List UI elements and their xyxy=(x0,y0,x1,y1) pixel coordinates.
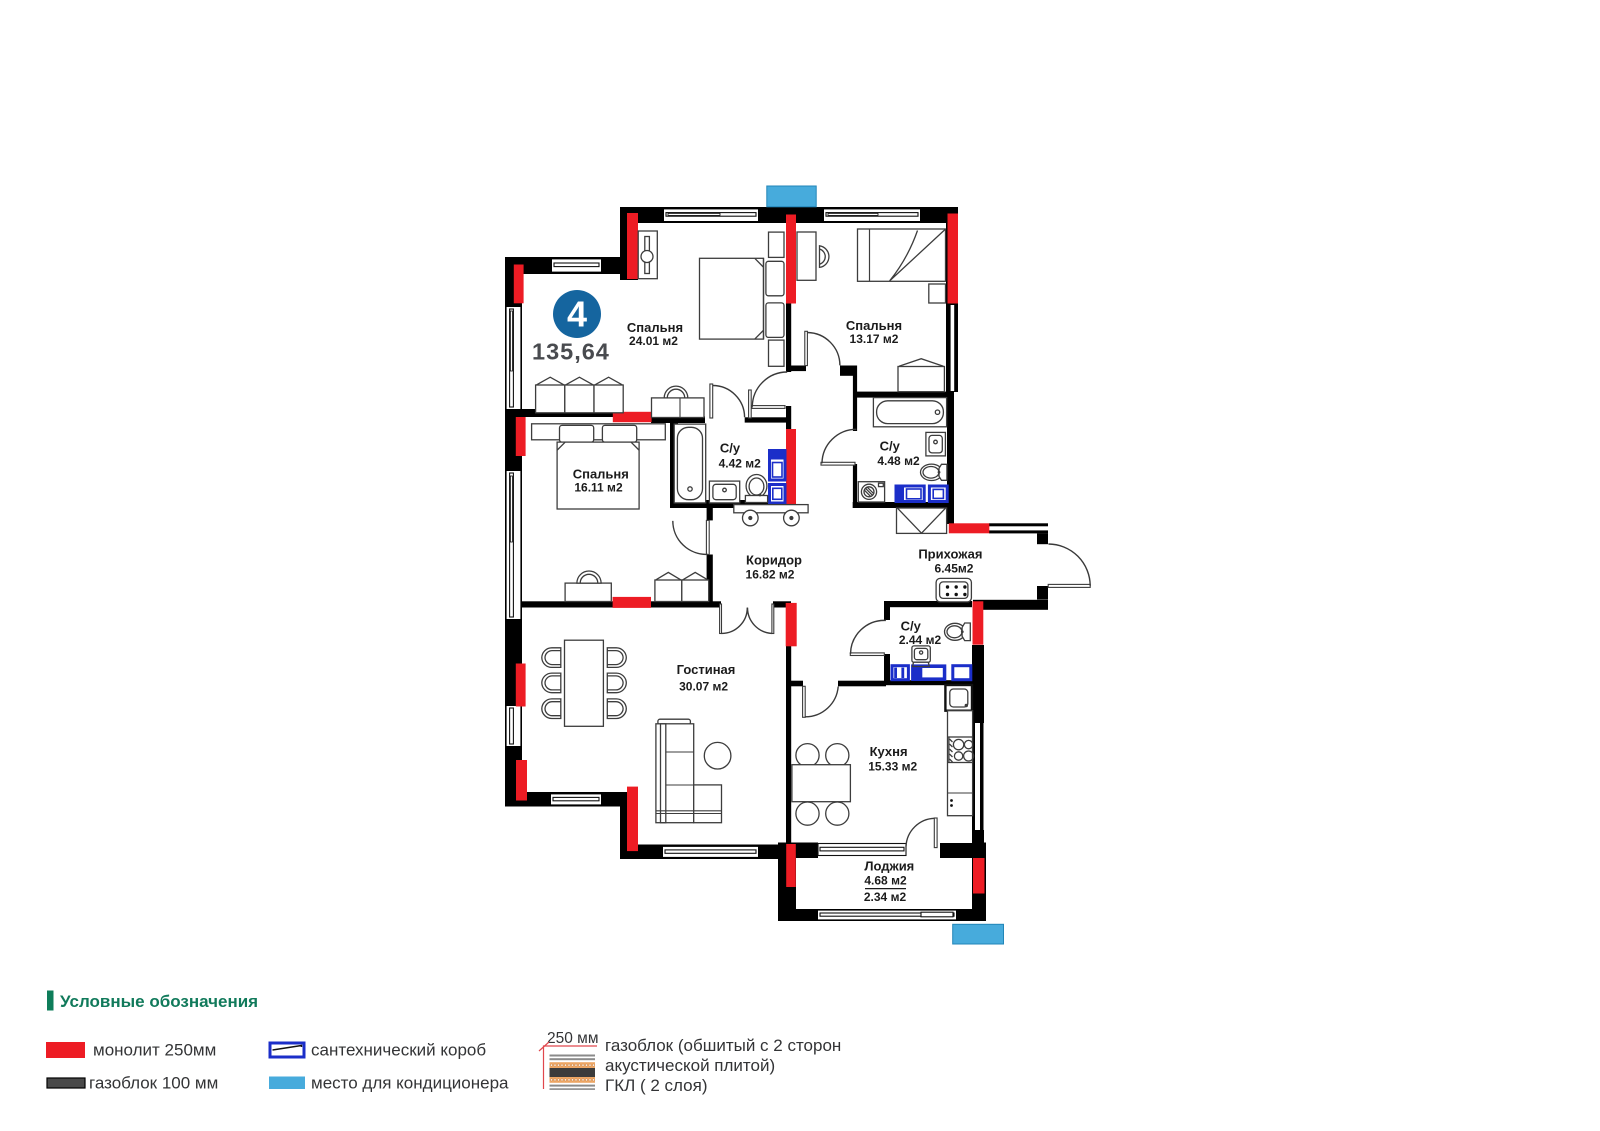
svg-text:Прихожая: Прихожая xyxy=(918,547,982,562)
svg-text:Спальня: Спальня xyxy=(627,320,683,335)
svg-text:газоблок 100 мм: газоблок 100 мм xyxy=(89,1074,218,1093)
svg-text:Лоджия: Лоджия xyxy=(864,859,914,874)
svg-text:4.42 м2: 4.42 м2 xyxy=(719,457,762,471)
svg-text:монолит 250мм: монолит 250мм xyxy=(93,1041,216,1060)
svg-text:ГКЛ ( 2 слоя): ГКЛ ( 2 слоя) xyxy=(605,1076,707,1095)
svg-text:Гостиная: Гостиная xyxy=(677,662,736,677)
svg-text:30.07 м2: 30.07 м2 xyxy=(679,680,728,694)
svg-text:Спальня: Спальня xyxy=(846,318,902,333)
svg-text:Коридор: Коридор xyxy=(746,553,802,568)
svg-text:4.68 м2: 4.68 м2 xyxy=(864,874,907,888)
svg-text:6.45м2: 6.45м2 xyxy=(935,562,974,576)
svg-text:16.82 м2: 16.82 м2 xyxy=(746,568,795,582)
svg-text:13.17 м2: 13.17 м2 xyxy=(850,332,899,346)
svg-text:С/у: С/у xyxy=(720,441,741,456)
svg-text:Кухня: Кухня xyxy=(870,744,908,759)
svg-text:2.44 м2: 2.44 м2 xyxy=(899,633,942,647)
svg-text:Спальня: Спальня xyxy=(573,467,629,482)
svg-text:С/у: С/у xyxy=(901,619,922,634)
svg-text:135,64: 135,64 xyxy=(532,339,610,365)
svg-text:24.01 м2: 24.01 м2 xyxy=(629,334,678,348)
svg-text:сантехнический короб: сантехнический короб xyxy=(311,1041,486,1060)
svg-text:16.11 м2: 16.11 м2 xyxy=(574,481,623,495)
svg-text:Условные обозначения: Условные обозначения xyxy=(60,992,258,1011)
svg-text:место для кондиционера: место для кондиционера xyxy=(311,1074,509,1093)
svg-text:С/у: С/у xyxy=(880,439,901,454)
svg-text:акустической плитой): акустической плитой) xyxy=(605,1056,775,1075)
svg-text:250 мм: 250 мм xyxy=(547,1030,598,1047)
svg-text:15.33 м2: 15.33 м2 xyxy=(868,760,917,774)
svg-text:4: 4 xyxy=(567,294,587,335)
svg-text:2.34 м2: 2.34 м2 xyxy=(864,890,907,904)
svg-text:4.48 м2: 4.48 м2 xyxy=(877,454,920,468)
svg-text:газоблок (обшитый с 2 сторон: газоблок (обшитый с 2 сторон xyxy=(605,1036,841,1055)
